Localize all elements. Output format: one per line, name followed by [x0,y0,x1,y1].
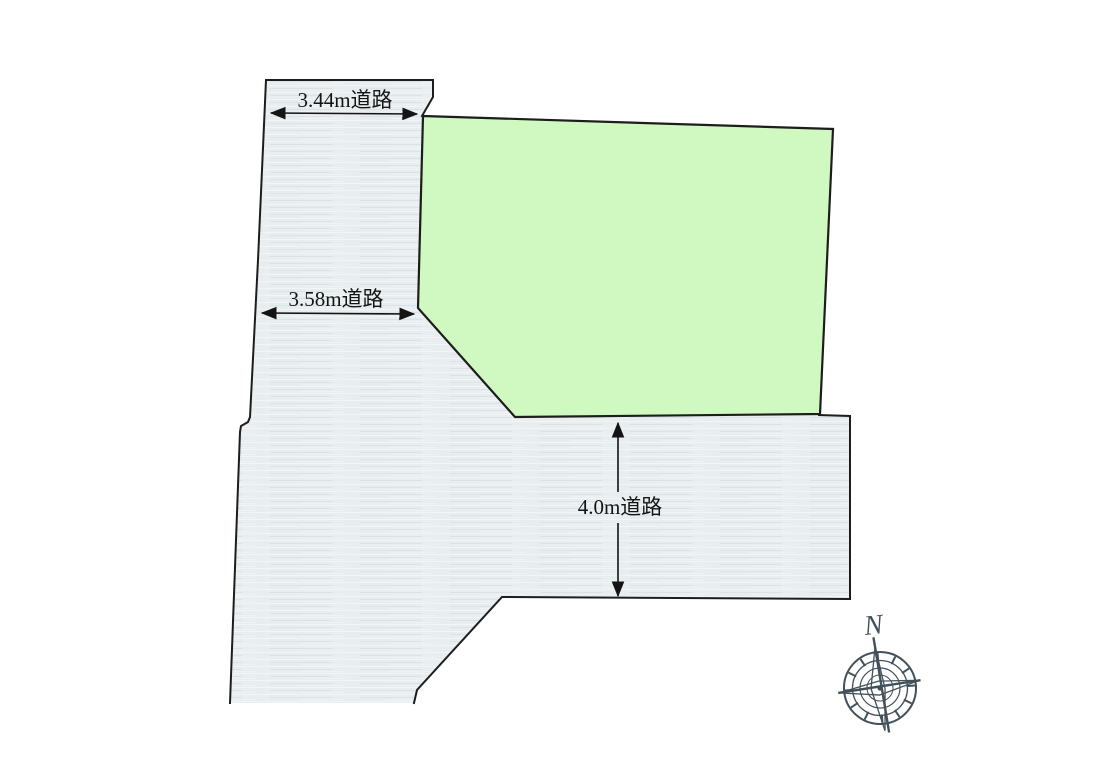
compass-rose: N [835,609,924,736]
plot-diagram-canvas: 3.44m道路 3.58m道路 4.0m道路 [0,0,1100,778]
compass-north-label: N [862,609,886,642]
dimension-arrow-358 [262,313,414,314]
dimension-label-40: 4.0m道路 [578,495,663,519]
dimension-label-358: 3.58m道路 [288,287,383,311]
dimension-label-344: 3.44m道路 [297,88,392,112]
compass-body [835,634,924,736]
land-plot [418,116,833,417]
plot-diagram: 3.44m道路 3.58m道路 4.0m道路 [0,0,1100,778]
dimension-arrow-344 [271,113,417,114]
